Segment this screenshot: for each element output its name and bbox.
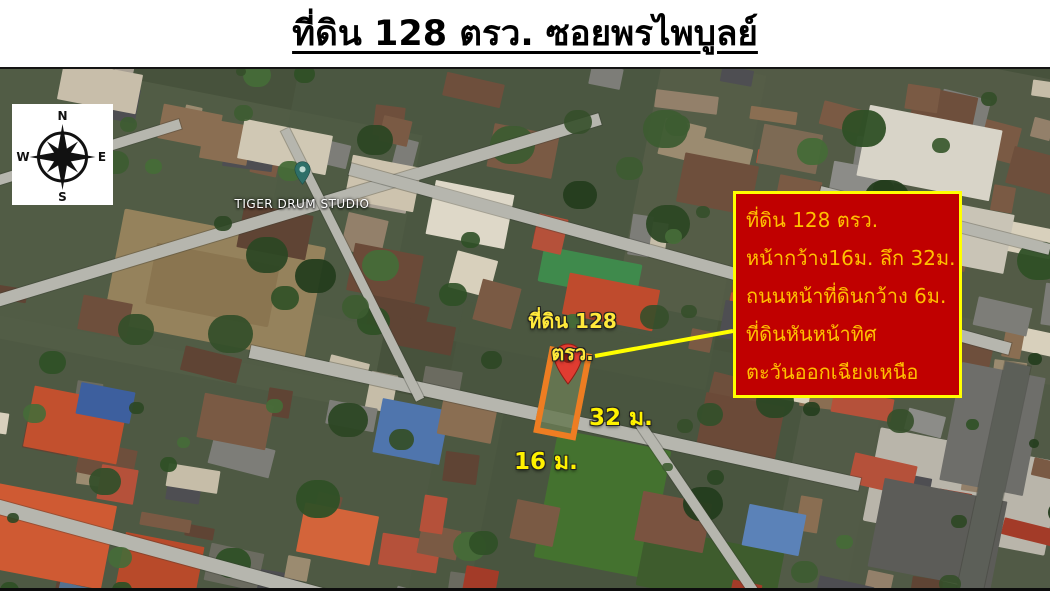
compass-rose-graphic: N E S W: [12, 104, 113, 205]
map-texture: [981, 92, 998, 106]
map-texture: [469, 531, 497, 555]
land-info-line: หน้ากว้าง16ม. ลึก 32ม.: [746, 239, 959, 277]
width-label: 16 ม.: [514, 444, 578, 480]
map-texture: [461, 232, 480, 248]
map-texture: [1029, 439, 1040, 448]
map-texture: [442, 451, 479, 485]
map-texture: [266, 399, 283, 414]
map-texture: [246, 237, 288, 273]
depth-label: 32 ม.: [589, 400, 653, 436]
map-texture: [108, 547, 133, 568]
map-texture: [951, 515, 966, 528]
map-texture: [294, 67, 315, 83]
land-info-line: ที่ดิน 128 ตรว.: [746, 201, 959, 239]
map-texture: [112, 582, 131, 591]
map-texture: [177, 437, 190, 448]
map-texture: [707, 470, 724, 484]
slide: ที่ดิน 128 ตรว. ซอยพรไพบูลย์ N E S W TIG…: [0, 0, 1050, 591]
map-texture: [7, 513, 19, 523]
map-texture: [129, 402, 144, 415]
compass-east-label: E: [98, 150, 106, 164]
map-texture: [842, 110, 886, 147]
map-texture: [640, 305, 669, 329]
map-texture: [904, 84, 940, 114]
compass-rose: N E S W: [12, 104, 113, 205]
map-texture: [616, 157, 643, 180]
compass-north-label: N: [57, 109, 67, 123]
map-texture: [932, 138, 950, 153]
map-texture: [342, 295, 370, 318]
map-texture: [160, 457, 177, 471]
map-texture: [208, 315, 253, 353]
map-texture: [803, 402, 820, 416]
compass-south-label: S: [58, 190, 67, 204]
map-texture: [328, 403, 368, 437]
map-texture: [145, 159, 162, 173]
map-texture: [665, 229, 682, 244]
map-texture: [564, 110, 593, 134]
map-texture: [509, 499, 560, 547]
map-texture: [677, 419, 693, 433]
map-texture: [234, 105, 253, 121]
place-label: TIGER DRUM STUDIO: [222, 197, 382, 211]
map-texture: [481, 351, 502, 369]
map-texture: [214, 216, 232, 231]
plot-title-label: ที่ดิน 128 ตรว.: [505, 305, 640, 369]
map-texture: [118, 314, 155, 345]
map-texture: [362, 250, 398, 281]
map-texture: [89, 468, 121, 495]
map-texture: [939, 575, 961, 591]
compass-west-label: W: [16, 150, 29, 164]
satellite-map: N E S W TIGER DRUM STUDIO ที่ดิน 128 ตรว…: [0, 67, 1050, 591]
map-texture: [295, 259, 335, 293]
map-texture: [697, 403, 724, 426]
map-texture: [243, 67, 271, 87]
map-texture: [696, 206, 710, 218]
map-texture: [23, 404, 45, 423]
map-texture: [389, 429, 414, 450]
map-texture: [357, 125, 393, 155]
map-texture: [966, 419, 980, 431]
title-strip: ที่ดิน 128 ตรว. ซอยพรไพบูลย์: [0, 0, 1050, 67]
land-info-line: ตะวันออกเฉียงเหนือ: [746, 353, 959, 391]
map-texture: [39, 351, 66, 374]
place-pin-icon: [294, 161, 311, 185]
map-texture: [120, 117, 138, 132]
map-texture: [271, 286, 299, 310]
map-texture: [0, 582, 19, 591]
map-texture: [797, 138, 828, 165]
land-info-line: ที่ดินหันหน้าทิศ: [746, 315, 959, 353]
map-texture: [296, 480, 340, 517]
map-texture: [681, 305, 697, 318]
map-texture: [563, 181, 597, 210]
page-title: ที่ดิน 128 ตรว. ซอยพรไพบูลย์: [292, 6, 758, 61]
map-texture: [439, 283, 466, 306]
map-texture: [887, 409, 915, 433]
land-info-line: ถนนหน้าที่ดินกว้าง 6ม.: [746, 277, 959, 315]
land-info-box: ที่ดิน 128 ตรว. หน้ากว้าง16ม. ลึก 32ม. ถ…: [733, 191, 962, 398]
map-texture: [836, 535, 853, 549]
map-texture: [665, 115, 690, 136]
